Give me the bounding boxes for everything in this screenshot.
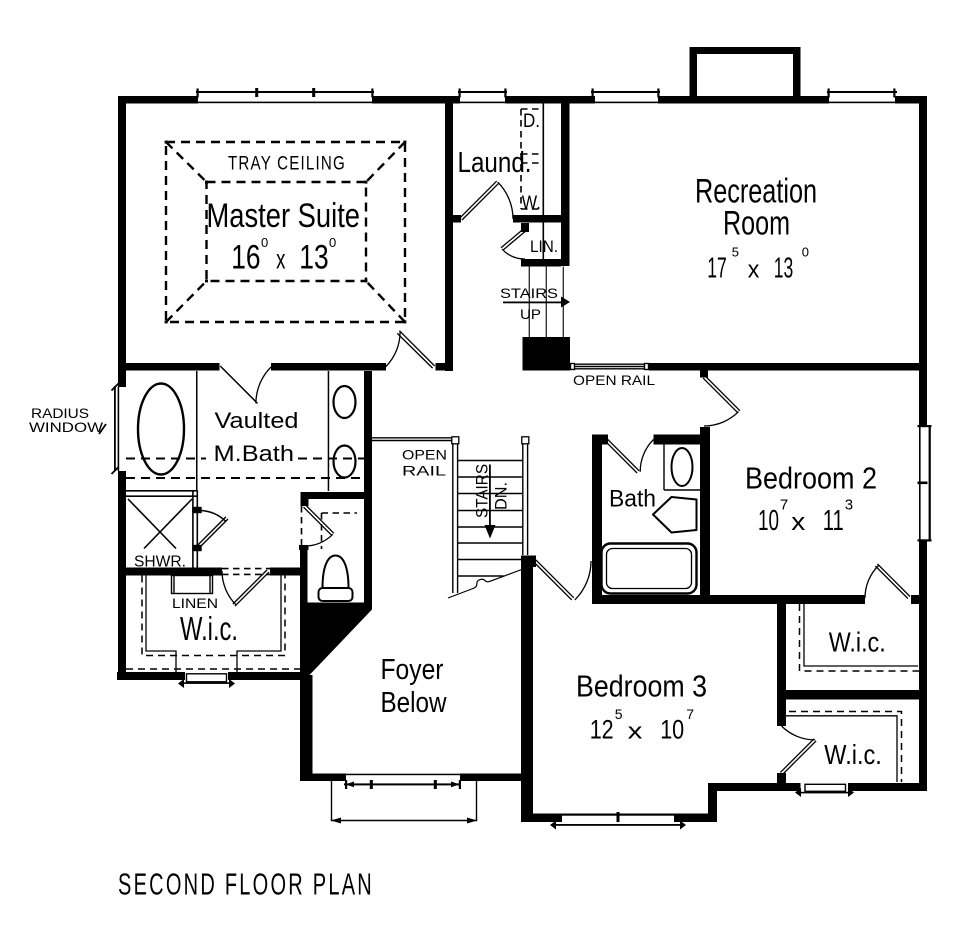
svg-text:Master Suite: Master Suite: [207, 197, 361, 235]
svg-text:17: 17: [707, 253, 727, 285]
svg-text:0: 0: [329, 235, 336, 250]
svg-text:D.: D.: [523, 111, 540, 132]
svg-text:Foyer: Foyer: [381, 654, 444, 686]
svg-text:10: 10: [660, 715, 684, 745]
svg-text:Room: Room: [723, 205, 790, 243]
svg-text:5: 5: [732, 245, 739, 260]
svg-text:UP: UP: [520, 306, 541, 322]
svg-text:x: x: [791, 509, 805, 536]
svg-text:W.i.c.: W.i.c.: [829, 627, 886, 658]
svg-text:7: 7: [686, 706, 694, 722]
svg-text:TRAY CEILING: TRAY CEILING: [228, 154, 346, 175]
svg-text:11: 11: [823, 505, 844, 537]
svg-text:13: 13: [299, 239, 328, 277]
svg-text:LIN.: LIN.: [530, 237, 558, 256]
svg-text:RAIL: RAIL: [402, 463, 446, 479]
svg-text:Bath: Bath: [609, 486, 656, 513]
svg-text:7: 7: [780, 496, 788, 513]
svg-text:DN.: DN.: [492, 482, 511, 510]
svg-text:16: 16: [231, 239, 260, 277]
svg-text:M.Bath: M.Bath: [214, 441, 295, 466]
svg-text:Below: Below: [381, 687, 448, 719]
svg-text:0: 0: [261, 235, 268, 250]
svg-text:10: 10: [758, 505, 779, 537]
svg-text:x: x: [276, 244, 285, 275]
svg-text:OPEN RAIL: OPEN RAIL: [573, 372, 655, 388]
svg-text:Vaulted: Vaulted: [215, 408, 299, 433]
svg-text:SECOND FLOOR PLAN: SECOND FLOOR PLAN: [118, 867, 374, 902]
svg-text:3: 3: [845, 496, 853, 513]
svg-text:5: 5: [615, 706, 623, 722]
svg-text:x: x: [748, 257, 760, 284]
svg-text:Laund.: Laund.: [458, 147, 532, 179]
svg-text:OPEN: OPEN: [402, 447, 447, 463]
svg-text:Bedroom 3: Bedroom 3: [576, 669, 707, 704]
svg-text:x: x: [628, 719, 643, 744]
svg-text:Bedroom 2: Bedroom 2: [745, 461, 877, 496]
svg-text:13: 13: [774, 253, 794, 285]
svg-text:W.i.c.: W.i.c.: [824, 739, 882, 770]
svg-text:12: 12: [590, 715, 614, 745]
svg-text:LINEN: LINEN: [172, 595, 218, 611]
svg-text:WINDOW: WINDOW: [29, 419, 104, 435]
svg-text:W.: W.: [522, 193, 541, 214]
svg-text:0: 0: [802, 245, 809, 260]
svg-text:W.i.c.: W.i.c.: [180, 610, 238, 647]
svg-text:STAIRS: STAIRS: [473, 464, 492, 518]
svg-text:STAIRS: STAIRS: [500, 285, 558, 301]
